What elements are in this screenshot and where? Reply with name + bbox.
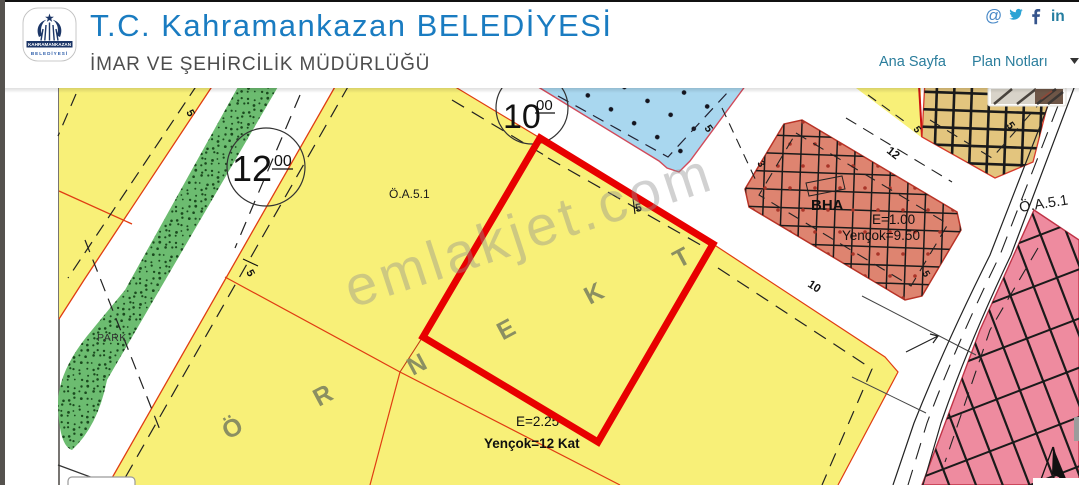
svg-text:12: 12: [232, 148, 272, 189]
svg-text:Ö.A.5.1: Ö.A.5.1: [389, 187, 430, 201]
svg-text:Yençok=9.50: Yençok=9.50: [842, 228, 920, 243]
svg-text:PARK: PARK: [97, 332, 127, 344]
svg-text:00: 00: [536, 97, 553, 114]
svg-text:@: @: [985, 6, 1002, 25]
svg-text:Plan Notları: Plan Notları: [972, 54, 1048, 70]
svg-text:Yençok=12 Kat: Yençok=12 Kat: [484, 436, 580, 451]
svg-text:Ana Sayfa: Ana Sayfa: [879, 54, 947, 70]
svg-text:İMAR VE ŞEHİRCİLİK MÜDÜRLÜĞÜ: İMAR VE ŞEHİRCİLİK MÜDÜRLÜĞÜ: [90, 53, 430, 75]
svg-text:00: 00: [274, 153, 292, 170]
svg-text:KAHRAMANKAZAN: KAHRAMANKAZAN: [28, 42, 72, 47]
svg-text:BELEDİYESİ: BELEDİYESİ: [31, 50, 68, 56]
svg-text:E=1.00: E=1.00: [872, 212, 915, 227]
svg-text:T.C. Kahramankazan BELEDİYESİ: T.C. Kahramankazan BELEDİYESİ: [90, 8, 613, 43]
svg-text:BHA: BHA: [811, 197, 844, 214]
svg-text:in: in: [1051, 8, 1065, 25]
